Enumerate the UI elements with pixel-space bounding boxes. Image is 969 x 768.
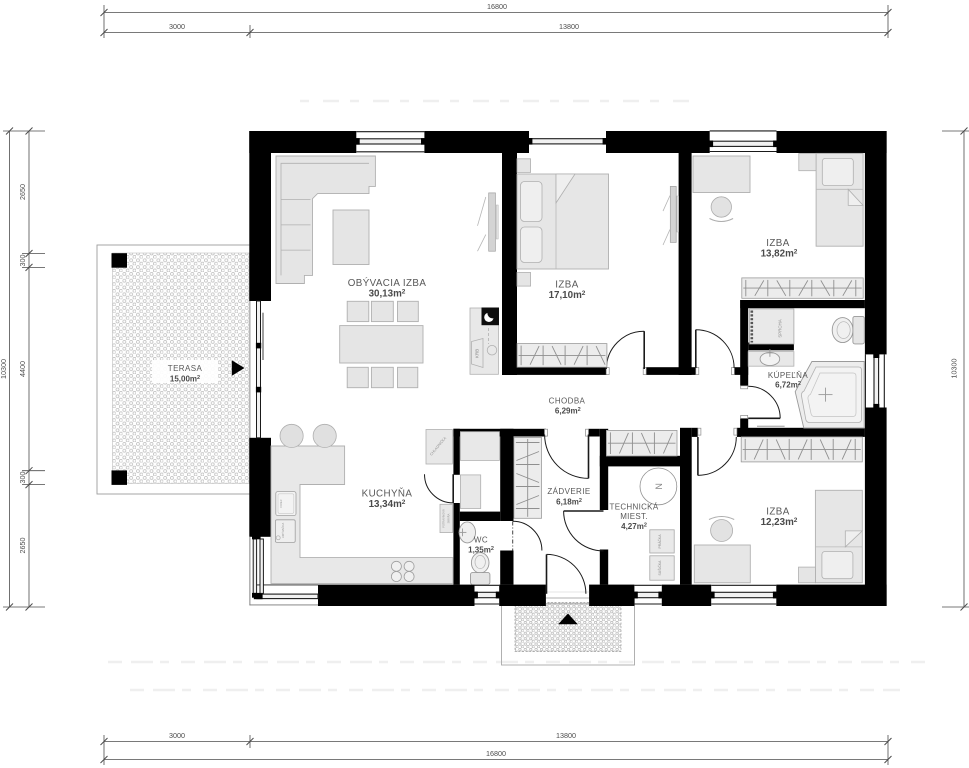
- svg-text:TERASA: TERASA: [168, 364, 203, 373]
- svg-text:16800: 16800: [486, 749, 506, 758]
- svg-text:15,00m2: 15,00m2: [170, 375, 200, 384]
- svg-text:UMÝVAČKA: UMÝVAČKA: [280, 523, 285, 539]
- svg-text:16800: 16800: [487, 2, 507, 11]
- svg-text:1,35m2: 1,35m2: [468, 546, 494, 555]
- svg-text:CHODBA: CHODBA: [549, 397, 586, 406]
- svg-text:2650: 2650: [18, 538, 27, 554]
- svg-text:KRB: KRB: [475, 349, 480, 358]
- svg-text:17,10m2: 17,10m2: [549, 290, 586, 301]
- svg-text:IZBA: IZBA: [766, 238, 789, 249]
- svg-text:2650: 2650: [18, 184, 27, 200]
- svg-text:4400: 4400: [18, 361, 27, 377]
- svg-text:MIEST.: MIEST.: [620, 512, 648, 521]
- svg-text:13800: 13800: [559, 22, 579, 31]
- svg-text:12,23m2: 12,23m2: [761, 517, 798, 528]
- svg-text:13,82m2: 13,82m2: [761, 248, 798, 259]
- svg-text:N: N: [653, 483, 663, 490]
- svg-text:3000: 3000: [169, 22, 185, 31]
- svg-text:10300: 10300: [950, 359, 959, 379]
- svg-text:SUŠIČKA: SUŠIČKA: [657, 560, 662, 576]
- svg-text:6,29m2: 6,29m2: [555, 407, 581, 416]
- svg-text:SPRCHA: SPRCHA: [778, 319, 783, 337]
- svg-text:POTRAVINOVÁ: POTRAVINOVÁ: [442, 509, 446, 528]
- svg-text:300: 300: [18, 255, 27, 267]
- svg-text:10300: 10300: [0, 359, 8, 379]
- svg-text:4,27m2: 4,27m2: [621, 522, 647, 531]
- svg-text:13800: 13800: [556, 731, 576, 740]
- svg-text:ZÁDVERIE: ZÁDVERIE: [547, 487, 590, 496]
- svg-text:KÚPEĽŇA: KÚPEĽŇA: [768, 371, 808, 380]
- svg-text:WC: WC: [474, 536, 488, 545]
- svg-text:13,34m2: 13,34m2: [369, 499, 406, 510]
- svg-text:30,13m2: 30,13m2: [369, 288, 406, 299]
- svg-text:3000: 3000: [169, 731, 185, 740]
- svg-text:6,72m2: 6,72m2: [775, 381, 801, 390]
- svg-text:DREZ: DREZ: [279, 499, 283, 507]
- svg-text:6,18m2: 6,18m2: [556, 498, 582, 507]
- svg-text:300: 300: [18, 472, 27, 484]
- svg-text:TECHNICKÁ: TECHNICKÁ: [610, 503, 659, 512]
- svg-text:PRÁČKA: PRÁČKA: [657, 534, 662, 549]
